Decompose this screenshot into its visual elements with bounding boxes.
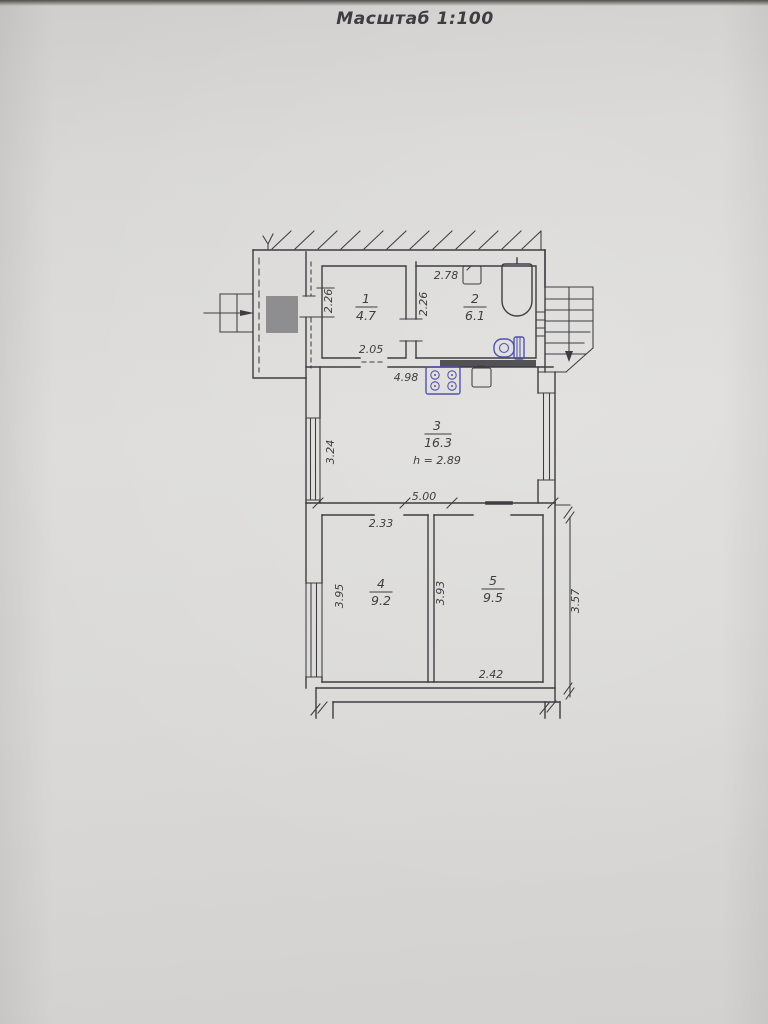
stove-icon — [426, 367, 460, 394]
dim-room4-width: 2.33 — [369, 517, 394, 530]
dim-room1-depth: 2.26 — [322, 289, 335, 314]
room3-ceiling-height: h = 2.89 — [413, 454, 461, 467]
dim-room2-depth: 2.26 — [417, 292, 430, 317]
room2-number: 2 — [471, 291, 479, 306]
break-mark-left-icon — [311, 702, 327, 715]
break-mark-right-icon — [540, 701, 556, 714]
room5-number: 5 — [489, 573, 497, 588]
room3-right-window-icon — [538, 393, 555, 480]
room3-left-window-icon — [306, 418, 320, 500]
room-labels: 1 4.7 2 6.1 3 16.3 h = 2.89 4 9.2 5 9.5 — [356, 291, 504, 608]
water-heater-icon — [463, 266, 481, 284]
bottom-exterior-wall — [311, 688, 560, 718]
room1-area: 4.7 — [356, 308, 376, 323]
dim-room5-depth: 3.93 — [434, 581, 447, 606]
dim-room3-width: 4.98 — [394, 371, 419, 384]
room4-area: 9.2 — [371, 593, 391, 608]
floor-plan-drawing: Масштаб 1:100 — [0, 0, 768, 1024]
sink-icon — [472, 366, 491, 387]
dim-room5-width: 2.42 — [479, 668, 504, 681]
room4-left-window-icon — [306, 583, 322, 677]
top-wall-hatching-icon — [263, 231, 541, 250]
entrance-arrow-icon — [204, 310, 254, 316]
scale-title: Масштаб 1:100 — [336, 9, 494, 29]
break-mark-bottom-icon — [564, 683, 574, 699]
toilet-icon — [494, 337, 524, 359]
dim-room4-depth: 3.95 — [333, 584, 346, 609]
stair-down-arrow-icon — [565, 351, 573, 362]
dim-room1-width: 2.05 — [359, 343, 384, 356]
dim-rooms45-total-width: 5.00 — [412, 490, 437, 503]
ventilation-shaft — [266, 296, 298, 333]
paper-sheet: Масштаб 1:100 — [0, 0, 768, 1024]
hatch-start-mark-icon — [263, 234, 273, 250]
dim-room2-width: 2.78 — [434, 269, 459, 282]
room3-area: 16.3 — [424, 435, 452, 450]
room5-area: 9.5 — [483, 590, 503, 605]
room4-number: 4 — [377, 576, 385, 591]
break-mark-top-icon — [564, 507, 574, 523]
room3-number: 3 — [433, 418, 441, 433]
room2-area: 6.1 — [465, 308, 485, 323]
room1-number: 1 — [362, 291, 370, 306]
dim-room3-depth: 3.24 — [324, 440, 337, 465]
dim-side-extension: 3.57 — [569, 589, 582, 614]
bathroom-wall-fill — [440, 360, 536, 367]
